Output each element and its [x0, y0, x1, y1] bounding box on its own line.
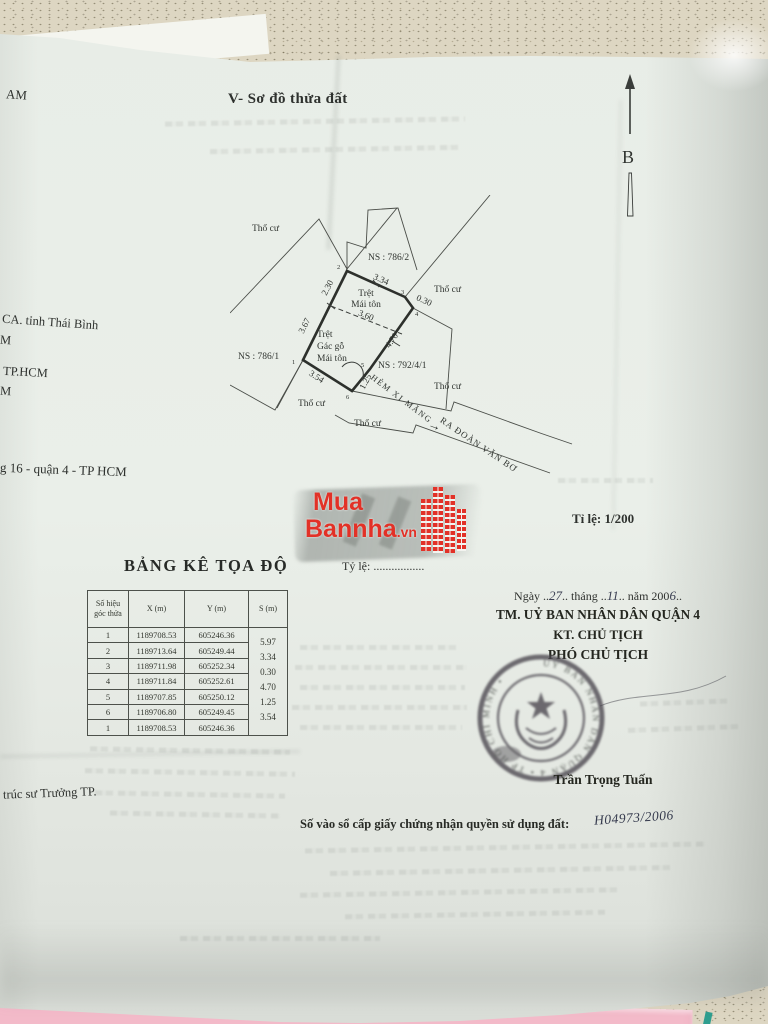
north-label: B — [622, 147, 634, 167]
bleed-through-texture — [292, 705, 467, 710]
section-title: V- Sơ đồ thửa đất — [228, 91, 348, 108]
svg-text:Mái tôn: Mái tôn — [351, 300, 381, 310]
svg-text:6: 6 — [346, 394, 350, 401]
parcel-sketch: Thổ cư Thổ cư Thổ cư Thổ cư Thổ cư NS : … — [230, 195, 670, 495]
coordinate-table: Số hiệugóc thửa X (m) Y (m) S (m) 111897… — [87, 590, 288, 736]
edge-length: 0.30 — [249, 667, 287, 677]
star-icon — [527, 692, 555, 719]
edge-fragment: AM — [5, 86, 27, 103]
stamp-emblem — [516, 692, 565, 749]
parcel-label-786-2: NS : 786/2 — [368, 253, 409, 263]
watermark-buildings-icon — [421, 487, 467, 553]
land-use-label: Thổ cư — [434, 284, 462, 295]
coord-table-title: BẢNG KÊ TỌA ĐỘ — [124, 556, 288, 576]
handwritten-month: 11 — [607, 588, 619, 603]
dim-right: 4.70 — [383, 331, 401, 350]
svg-text:5: 5 — [361, 362, 364, 369]
watermark-word-1: Mua — [313, 490, 363, 515]
watermark-tld: .vn — [397, 524, 417, 540]
bleed-through-texture — [300, 725, 462, 730]
svg-text:Gác gỗ: Gác gỗ — [317, 341, 344, 352]
parcel-label-786-1: NS : 786/1 — [238, 352, 279, 362]
dim-jog: 0.30 — [415, 292, 434, 308]
structure-top-label: Trệt Mái tôn — [351, 289, 381, 310]
vertex-numbers: 1 2 3 4 5 6 — [292, 264, 419, 401]
svg-text:Trệt: Trệt — [358, 289, 374, 299]
registry-label: Số vào sổ cấp giấy chứng nhận quyền sử d… — [300, 817, 569, 832]
paper-shadow — [0, 925, 768, 1005]
svg-text:1: 1 — [292, 359, 295, 366]
scale-blank-line: Tỷ lệ: ................. — [342, 559, 424, 574]
alley-direction-label: RA ĐOÀN VĂN BƠ — [438, 415, 519, 474]
svg-text:4: 4 — [415, 311, 419, 318]
edge-length: 3.54 — [249, 712, 287, 722]
svg-text:2: 2 — [337, 264, 340, 271]
date-line: Ngày ..27.. tháng ..11.. năm 2006.. — [430, 588, 766, 604]
svg-text:Mái tôn: Mái tôn — [317, 354, 347, 364]
table-row: 11189708.53605246.36 5.97 3.34 0.30 4.70… — [88, 628, 288, 643]
watermark-word-2: Bannha.vn — [305, 517, 417, 542]
on-behalf-line: KT. CHỦ TỊCH — [430, 627, 766, 643]
teal-paper-sliver — [702, 1011, 712, 1024]
dim-left-lower: 3.67 — [296, 316, 312, 335]
edge-length: 4.70 — [249, 682, 287, 692]
bleed-through-texture — [180, 936, 380, 941]
svg-text:Trệt: Trệt — [317, 330, 333, 340]
svg-text:3: 3 — [401, 289, 404, 296]
alley-name-label: HẺM XI MĂNG — [369, 372, 435, 425]
bleed-through-texture — [300, 685, 465, 690]
edge-fragment: TP.HCM — [3, 364, 49, 381]
coordinate-table-header: Số hiệugóc thửa X (m) Y (m) S (m) — [88, 591, 288, 628]
dim-bottom: 3.54 — [307, 368, 326, 385]
land-use-label: Thổ cư — [354, 418, 382, 429]
bleed-through-texture — [295, 665, 467, 670]
land-use-label: Thổ cư — [298, 398, 326, 409]
edge-length: 1.25 — [249, 697, 287, 707]
handwritten-day: 27 — [549, 588, 562, 603]
land-use-label: Thổ cư — [252, 223, 280, 234]
edge-fragment: M — [0, 333, 12, 349]
edge-length: 5.97 — [249, 637, 287, 647]
land-use-labels: Thổ cư Thổ cư Thổ cư Thổ cư Thổ cư — [252, 223, 462, 429]
photographed-land-document: V- Sơ đồ thửa đất B Thổ cư Thổ cư — [0, 0, 768, 1024]
edge-fragment: M — [0, 384, 12, 400]
land-use-label: Thổ cư — [434, 381, 462, 392]
parcel-label-792-4-1: NS : 792/4/1 — [378, 361, 427, 371]
signer-name: Trần Trọng Tuấn — [528, 772, 678, 788]
edge-length: 3.34 — [249, 652, 287, 662]
authority-line: TM. UỶ BAN NHÂN DÂN QUẬN 4 — [430, 607, 766, 623]
scale-note: Tỉ lệ: 1/200 — [572, 511, 634, 527]
dim-left-upper: 2.30 — [319, 278, 335, 297]
edge-length-column: 5.97 3.34 0.30 4.70 1.25 3.54 — [249, 628, 288, 736]
signature-stroke — [560, 660, 768, 730]
structure-bottom-label: Trệt Gác gỗ Mái tôn — [317, 330, 347, 364]
